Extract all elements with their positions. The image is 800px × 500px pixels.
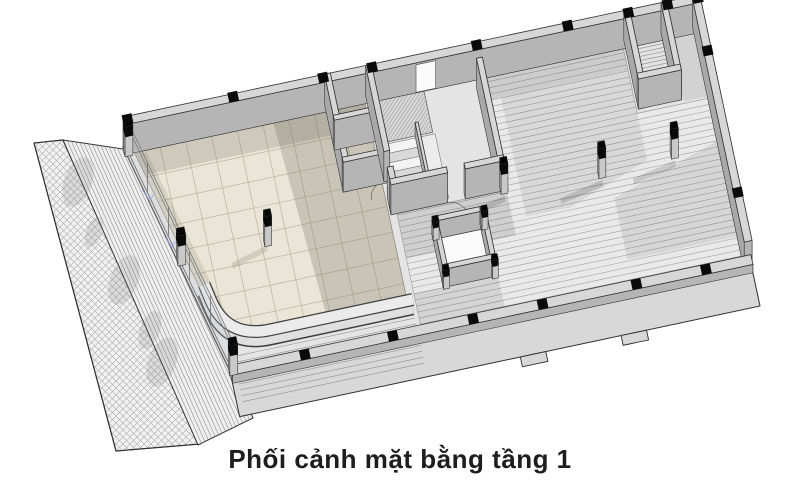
- embedded-column-cap: [317, 72, 329, 84]
- embedded-column-cap: [122, 113, 134, 125]
- embedded-column-cap: [387, 330, 399, 342]
- embedded-column-cap: [467, 313, 479, 325]
- embedded-column-cap: [366, 61, 378, 73]
- floor-plan-3d-view: [0, 0, 800, 500]
- embedded-column-cap: [702, 45, 714, 57]
- embedded-column-cap: [471, 39, 483, 51]
- embedded-column-cap: [631, 278, 643, 290]
- embedded-column-cap: [227, 91, 239, 103]
- floor-plan-figure: Phối cảnh mặt bằng tầng 1: [0, 0, 800, 500]
- caption: Phối cảnh mặt bằng tầng 1: [0, 444, 800, 475]
- embedded-column-cap: [562, 20, 574, 32]
- embedded-column-cap: [700, 263, 712, 275]
- embedded-column-cap: [537, 298, 549, 310]
- embedded-column-cap: [732, 186, 744, 198]
- embedded-column-cap: [622, 7, 634, 19]
- embedded-column-cap: [299, 349, 311, 361]
